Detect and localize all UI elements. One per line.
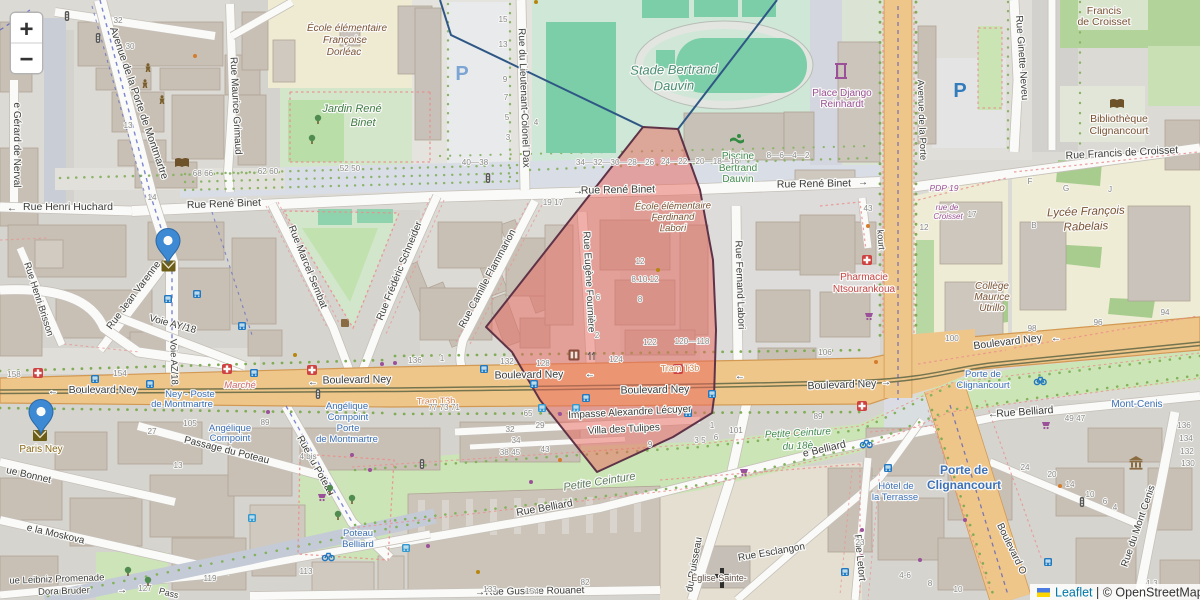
svg-text:Leaflet: Leaflet bbox=[1055, 586, 1093, 600]
svg-text:−: − bbox=[19, 46, 33, 73]
svg-text:+: + bbox=[19, 16, 33, 43]
svg-text:| © OpenStreetMap: | © OpenStreetMap bbox=[1096, 586, 1200, 600]
